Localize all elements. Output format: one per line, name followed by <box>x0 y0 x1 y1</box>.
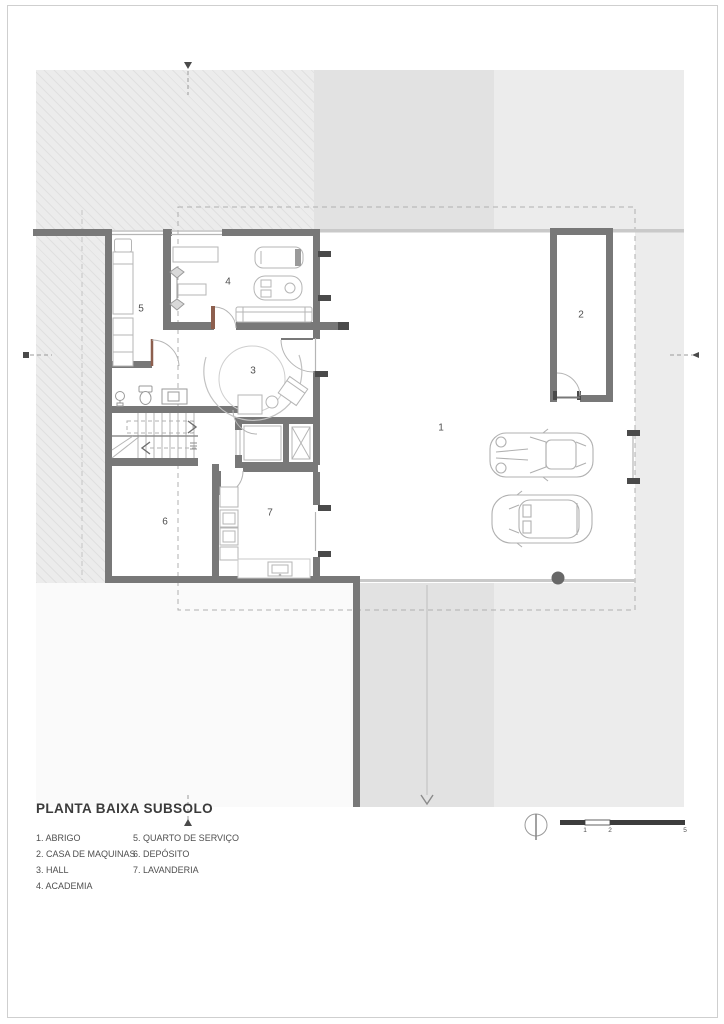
room-label-quarto-servico: 5 <box>138 304 144 315</box>
drawing-sheet: 1 2 3 4 5 6 7 1 2 5 PLANTA BAIXA SUBSOLO… <box>0 0 724 1024</box>
appliance <box>220 487 238 507</box>
legend-item: 5. QUARTO DE SERVIÇO <box>133 830 239 846</box>
driveway-dot <box>552 572 565 585</box>
staircase <box>112 413 198 458</box>
cabinet <box>220 547 238 560</box>
legend-item: 7. LAVANDERIA <box>133 862 239 878</box>
hall-table <box>238 395 262 414</box>
legend-item: 2. CASA DE MAQUINAS <box>36 846 136 862</box>
car-suv <box>492 491 592 547</box>
room-label-abrigo: 1 <box>438 423 444 434</box>
elevator-car <box>244 426 281 460</box>
car-sports <box>490 429 593 481</box>
legend-column-2: 5. QUARTO DE SERVIÇO 6. DEPÓSITO 7. LAVA… <box>133 830 239 878</box>
driveway-arrow-icon <box>421 795 433 804</box>
barbell-plate <box>170 299 184 310</box>
pedestal-sink <box>116 392 125 401</box>
scale-tick-2: 2 <box>608 827 612 834</box>
bathroom-fixtures <box>116 386 188 406</box>
room-label-casa-de-maquinas: 2 <box>578 310 584 321</box>
sofa <box>236 307 312 322</box>
scale-bar <box>560 820 685 825</box>
bed <box>113 252 133 314</box>
section-markers <box>23 62 699 826</box>
elevator-and-shaft <box>244 426 310 460</box>
north-arrow-icon <box>525 814 547 840</box>
gym-equipment <box>170 247 312 322</box>
service-room-furniture <box>113 239 133 366</box>
bench <box>178 284 206 295</box>
room-label-academia: 4 <box>225 277 231 288</box>
gym-table <box>173 247 218 262</box>
armchair <box>278 376 307 405</box>
legend-item: 3. HALL <box>36 862 136 878</box>
pillow <box>115 239 132 252</box>
barbell-plate <box>170 267 184 278</box>
room-label-deposito: 6 <box>162 517 168 528</box>
page-title: PLANTA BAIXA SUBSOLO <box>36 801 213 816</box>
chest <box>113 352 133 366</box>
room-label-lavanderia: 7 <box>267 508 273 519</box>
side-table <box>266 396 278 408</box>
legend-item: 1. ABRIGO <box>36 830 136 846</box>
laundry-fixtures <box>220 487 310 578</box>
legend-item: 4. ACADEMIA <box>36 878 136 894</box>
scale-tick-5: 5 <box>683 827 687 834</box>
scale-tick-1: 1 <box>583 827 587 834</box>
room-label-hall: 3 <box>250 366 256 377</box>
legend-column-1: 1. ABRIGO 2. CASA DE MAQUINAS 3. HALL 4.… <box>36 830 136 894</box>
legend-item: 6. DEPÓSITO <box>133 846 239 862</box>
toilet-bowl <box>140 392 151 405</box>
